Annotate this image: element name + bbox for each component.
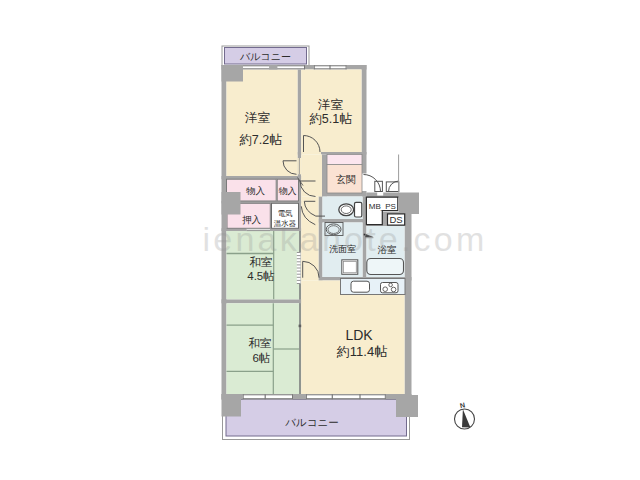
svg-text:玄関: 玄関 [336,174,356,185]
svg-text:LDK: LDK [345,327,373,343]
svg-text:和室: 和室 [249,337,272,349]
svg-text:MB_PS: MB_PS [369,202,396,211]
svg-text:電気: 電気 [278,209,294,218]
svg-text:物入: 物入 [246,185,266,196]
svg-text:洋室: 洋室 [317,98,344,112]
svg-text:バルコニー: バルコニー [239,51,291,62]
svg-text:ienakanote.com: ienakanote.com [203,220,488,258]
svg-text:約11.4帖: 約11.4帖 [336,344,387,359]
svg-text:4.5帖: 4.5帖 [247,270,275,282]
svg-text:物入: 物入 [279,186,297,196]
svg-text:6帖: 6帖 [253,352,271,364]
svg-text:洋室: 洋室 [244,111,271,125]
svg-text:約7.2帖: 約7.2帖 [239,133,282,147]
svg-text:バルコニー: バルコニー [284,416,338,428]
svg-text:約5.1帖: 約5.1帖 [309,112,352,126]
